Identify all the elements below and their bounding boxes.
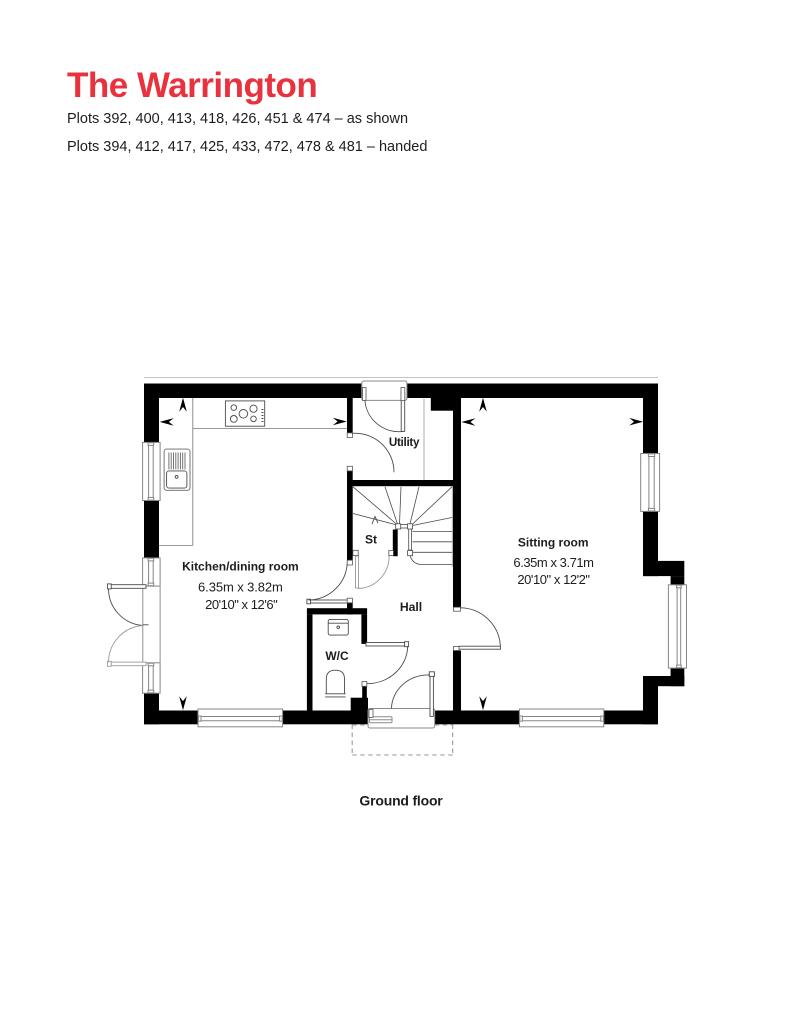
svg-text:Hall: Hall [400, 600, 422, 614]
svg-text:Sitting room: Sitting room [518, 536, 589, 550]
svg-text:20'10" x 12'2": 20'10" x 12'2" [517, 572, 590, 587]
svg-text:Kitchen/dining room: Kitchen/dining room [182, 560, 299, 574]
svg-text:20'10" x 12'6": 20'10" x 12'6" [205, 597, 278, 612]
svg-text:W/C: W/C [325, 649, 349, 663]
svg-text:Utility: Utility [389, 436, 420, 449]
svg-text:6.35m x 3.82m: 6.35m x 3.82m [198, 579, 283, 594]
svg-text:St: St [365, 533, 377, 547]
svg-text:6.35m x 3.71m: 6.35m x 3.71m [513, 555, 593, 570]
svg-text:Ground floor: Ground floor [359, 793, 443, 809]
